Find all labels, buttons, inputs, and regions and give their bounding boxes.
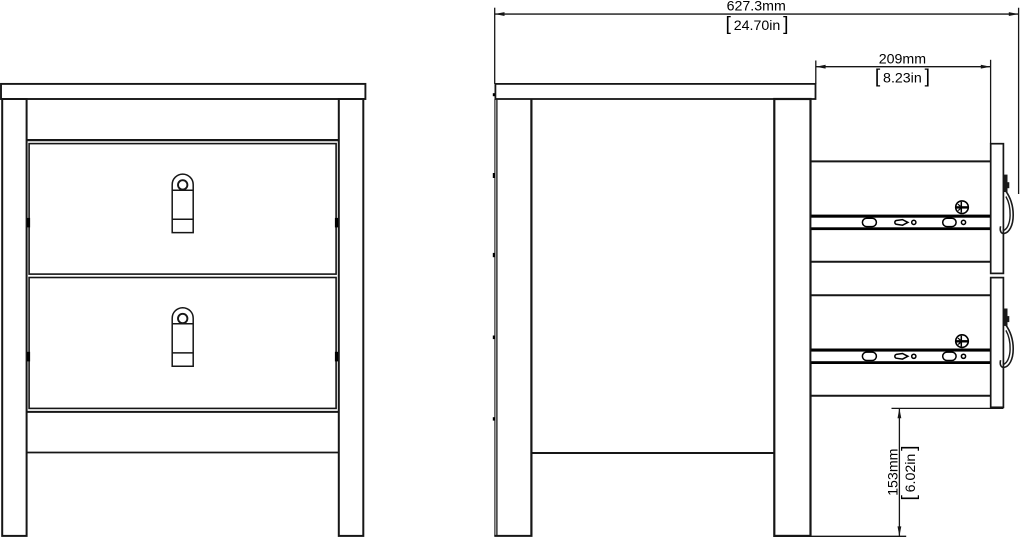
svg-text:209mm: 209mm	[879, 51, 926, 67]
svg-text:[ 6.02in ]: [ 6.02in ]	[899, 445, 920, 500]
svg-text:[ 24.70in ]: [ 24.70in ]	[726, 14, 789, 35]
svg-text:153mm: 153mm	[886, 449, 902, 496]
svg-text:[ 8.23in ]: [ 8.23in ]	[875, 67, 930, 88]
svg-text:627.3mm: 627.3mm	[727, 0, 786, 14]
